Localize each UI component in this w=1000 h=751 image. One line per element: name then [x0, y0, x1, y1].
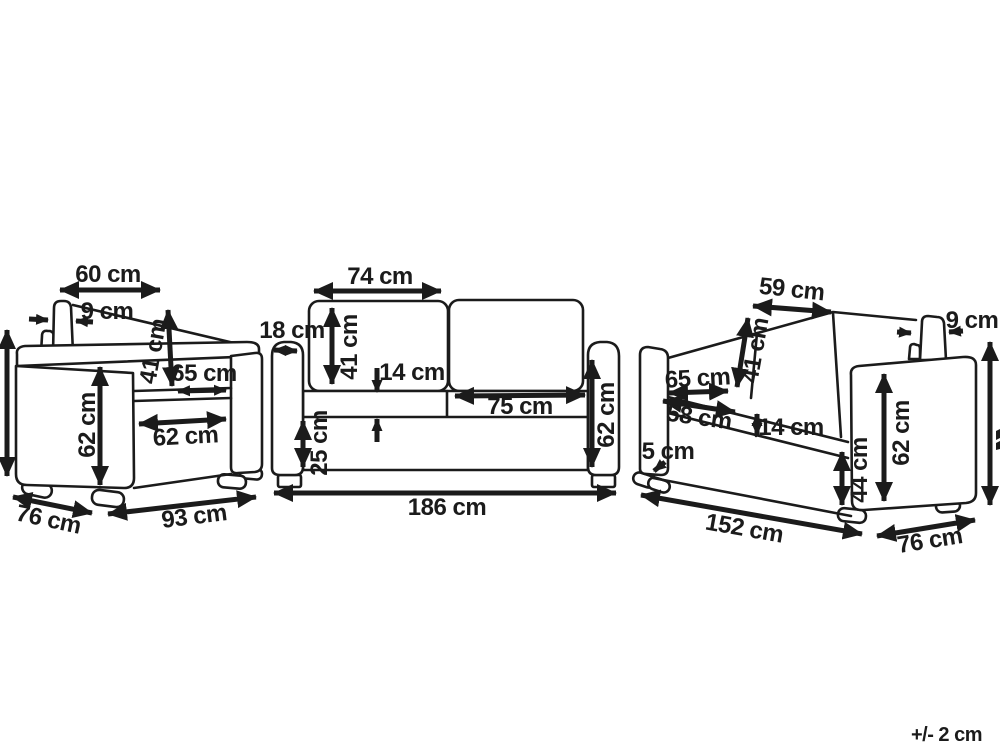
dim-sofa2-total-width: 152 cm — [641, 495, 862, 549]
dim-armchair-top-width: 60 cm — [60, 261, 160, 290]
dim-label-sofa3-cushion-width: 74 cm — [347, 263, 413, 290]
dim-label-sofa3-backrest-height: 41 cm — [336, 314, 363, 380]
dim-sofa2-backrest-height: 41 cm — [736, 316, 774, 387]
dim-label-sofa3-armrest-width: 18 cm — [259, 317, 325, 344]
dim-label-sofa3-base-height: 25 cm — [306, 410, 333, 476]
dim-armchair-depth: 76 cm — [13, 497, 92, 540]
dim-label-sofa2-leg-height: 5 cm — [642, 438, 695, 465]
dim-sofa3-backrest-height: 41 cm — [332, 308, 363, 384]
dim-label-sofa2-depth: 76 cm — [895, 522, 964, 559]
dim-sofa2-seat-height: 44 cm — [842, 437, 873, 505]
sofa-2seat-back-top-edge — [668, 312, 916, 358]
dim-label-sofa2-back-thickness: 9 cm — [946, 307, 999, 334]
dim-label-armchair-backrest-height: 41 cm — [134, 317, 172, 386]
sofa-3seat-left-arm — [272, 342, 303, 475]
dim-label-sofa3-total-width: 186 cm — [408, 494, 486, 521]
dim-armchair-seat-front-width: 62 cm — [139, 419, 226, 452]
dim-label-armchair-depth: 76 cm — [14, 500, 84, 540]
sofa-set-dimension-drawing: 60 cm 9 cm 41 cm 65 cm 62 cm 62 cm 76 cm… — [0, 0, 1000, 751]
dim-label-armchair-seat-front-width: 62 cm — [152, 421, 219, 451]
sofa-3seat-back-cushion-right — [449, 300, 583, 391]
armchair-drawing — [16, 301, 262, 508]
dim-sofa3-cushion-width: 74 cm — [314, 263, 441, 291]
dim-label-armchair-back-thickness: 9 cm — [81, 298, 134, 325]
dim-sofa3-total-width: 186 cm — [274, 493, 616, 521]
armchair-front-bottom-edge — [134, 474, 231, 488]
tolerance-note: +/- 2 cm — [911, 724, 982, 746]
armchair-leg — [91, 489, 125, 508]
dim-label-sofa2-cushion-width: 59 cm — [758, 273, 826, 307]
dim-label-armchair-seat-width: 65 cm — [171, 360, 237, 387]
dim-label-sofa2-seat-width: 65 cm — [664, 363, 731, 393]
dim-label-sofa3-side-height: 62 cm — [593, 382, 620, 448]
dim-armchair-total-width: 93 cm — [108, 497, 256, 534]
dim-label-armchair-top-width: 60 cm — [75, 261, 141, 288]
sofa-2seat-back-cushion — [920, 316, 946, 360]
dim-armchair-seat-width: 65 cm — [171, 360, 237, 391]
dim-sofa2-cushion-width: 59 cm — [753, 273, 831, 312]
dim-armchair-back-cushion-thickness: 9 cm — [29, 298, 133, 325]
dim-label-sofa2-seat-front-width: 58 cm — [665, 400, 734, 436]
dim-sofa2-depth: 76 cm — [877, 520, 975, 559]
dim-label-sofa2-seat-thickness: 14 cm — [758, 414, 824, 441]
clipped-label-fragment — [996, 429, 1000, 450]
dim-sofa3-base-height: 25 cm — [303, 410, 333, 476]
dim-label-sofa3-seat-width: 75 cm — [487, 393, 553, 420]
dim-label-sofa2-seat-height: 44 cm — [846, 437, 873, 503]
dim-sofa2-seat-width: 65 cm — [664, 363, 731, 393]
dim-label-sofa3-seat-thickness: 14 cm — [379, 359, 445, 386]
sofa-3seat-leg — [278, 475, 301, 487]
dim-label-armchair-side-height: 62 cm — [74, 392, 101, 458]
dim-sofa2-right-edge-height-arrow — [990, 342, 1000, 505]
dim-sofa2-seat-front-width: 58 cm — [663, 400, 735, 436]
dim-label-sofa2-backrest-height: 41 cm — [736, 316, 774, 385]
sofa-3seat-leg — [592, 475, 615, 487]
dim-sofa2-seat-cushion-thickness: 14 cm — [757, 414, 824, 441]
dim-label-sofa2-total-width: 152 cm — [703, 509, 785, 549]
dim-label-sofa2-side-height: 62 cm — [888, 400, 915, 466]
sofa-2seat-back-cushion-small — [909, 344, 920, 359]
dimension-diagram: 60 cm 9 cm 41 cm 65 cm 62 cm 62 cm 76 cm… — [0, 0, 1000, 751]
